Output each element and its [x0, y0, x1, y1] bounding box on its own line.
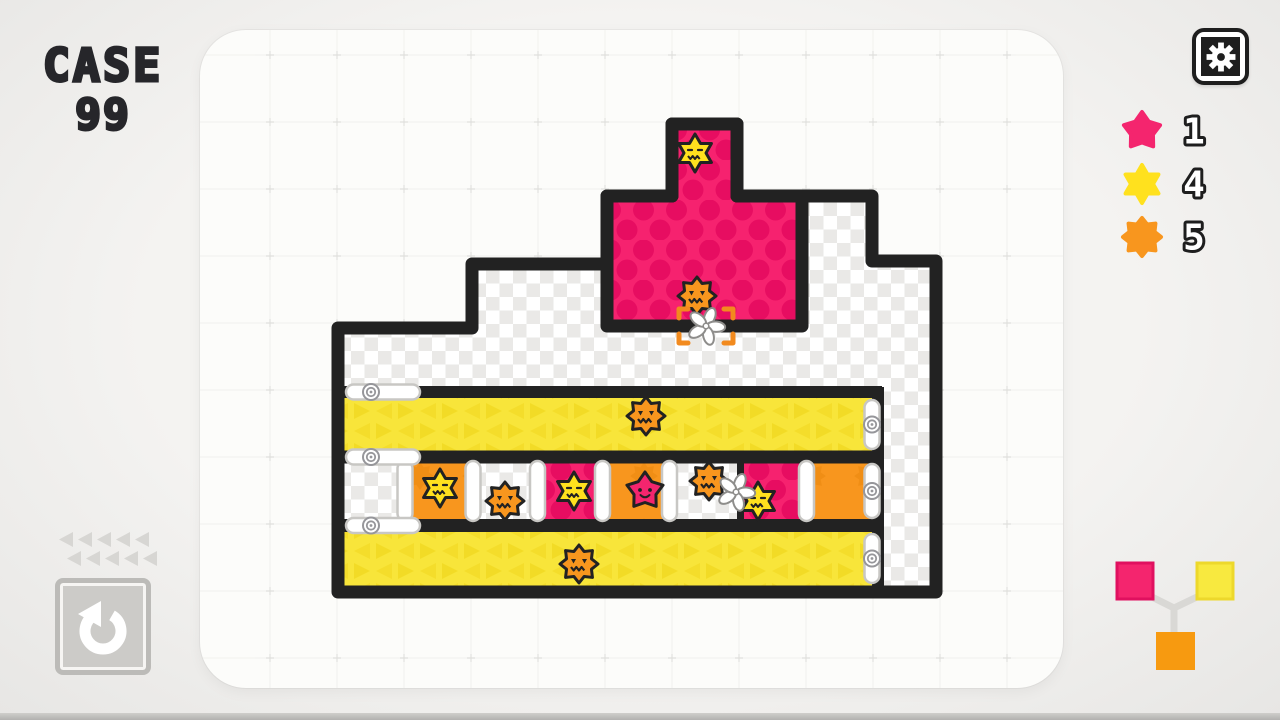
screw-icon	[363, 518, 379, 534]
chevron-left-icon	[140, 549, 159, 568]
roller-handle[interactable]	[398, 461, 413, 521]
svg-text:4: 4	[1183, 165, 1205, 206]
case-number-title: CASE 99	[18, 40, 188, 138]
roller-handle[interactable]	[595, 461, 610, 521]
chevron-left-icon	[121, 549, 140, 568]
settings-button[interactable]	[1192, 28, 1249, 85]
chevron-left-icon	[75, 530, 94, 549]
roller-handle[interactable]	[530, 461, 545, 521]
pink-star-icon	[1118, 108, 1166, 154]
mix-orange-square	[1156, 632, 1195, 670]
edge-bolt[interactable]	[346, 518, 420, 533]
orange-burst-creature[interactable]	[486, 482, 524, 520]
chevron-left-icon	[132, 530, 151, 549]
legend-row: 1	[1118, 108, 1238, 154]
svg-text:1: 1	[1183, 112, 1205, 153]
chevron-left-icon	[113, 530, 132, 549]
move-pips	[56, 530, 166, 568]
screen-bottom-edge	[0, 713, 1280, 720]
roller-handle[interactable]	[466, 461, 481, 521]
orange-burst-creature[interactable]	[627, 397, 665, 435]
chevron-left-icon	[94, 530, 113, 549]
legend-row: 5	[1118, 214, 1238, 260]
legend-count: 5	[1166, 214, 1222, 260]
svg-text:5: 5	[1183, 218, 1205, 259]
puzzle-board[interactable]	[0, 0, 1280, 720]
piece-legend: 145	[1118, 108, 1238, 267]
yellow-star-icon	[1126, 165, 1159, 203]
pink-star-icon	[1124, 112, 1160, 146]
chevron-left-icon	[56, 530, 75, 549]
legend-row: 4	[1118, 161, 1238, 207]
legend-count: 4	[1166, 161, 1222, 207]
move-pip-row	[64, 549, 166, 568]
color-mix-diagram	[1090, 550, 1265, 685]
yellow-star-icon	[1118, 161, 1166, 207]
screw-icon	[864, 483, 880, 499]
screw-icon	[363, 384, 379, 400]
mix-connector-lines	[1150, 596, 1199, 632]
game-screen: CASE 99 145	[0, 0, 1280, 720]
title-case-text: CASE	[18, 40, 188, 92]
undo-button[interactable]	[55, 578, 151, 675]
orange-burst-icon	[1123, 218, 1161, 256]
chevron-left-icon	[102, 549, 121, 568]
screw-icon	[864, 551, 880, 567]
cell-empty	[344, 457, 405, 525]
orange-burst-creature[interactable]	[560, 545, 598, 583]
undo-arrow-icon	[65, 589, 141, 665]
roller-handle[interactable]	[799, 461, 814, 521]
edge-bolt[interactable]	[346, 450, 420, 465]
gear-icon	[1201, 37, 1240, 76]
title-case-number: 99	[18, 92, 188, 138]
roller-handle[interactable]	[662, 461, 677, 521]
move-pip-row	[56, 530, 166, 549]
mix-yellow-square	[1197, 563, 1233, 599]
orange-burst-icon	[1118, 214, 1166, 260]
chevron-left-icon	[83, 549, 102, 568]
edge-bolt[interactable]	[346, 385, 420, 400]
mix-pink-square	[1117, 563, 1153, 599]
screw-icon	[864, 417, 880, 433]
chevron-left-icon	[64, 549, 83, 568]
screw-icon	[363, 449, 379, 465]
legend-count: 1	[1166, 108, 1222, 154]
